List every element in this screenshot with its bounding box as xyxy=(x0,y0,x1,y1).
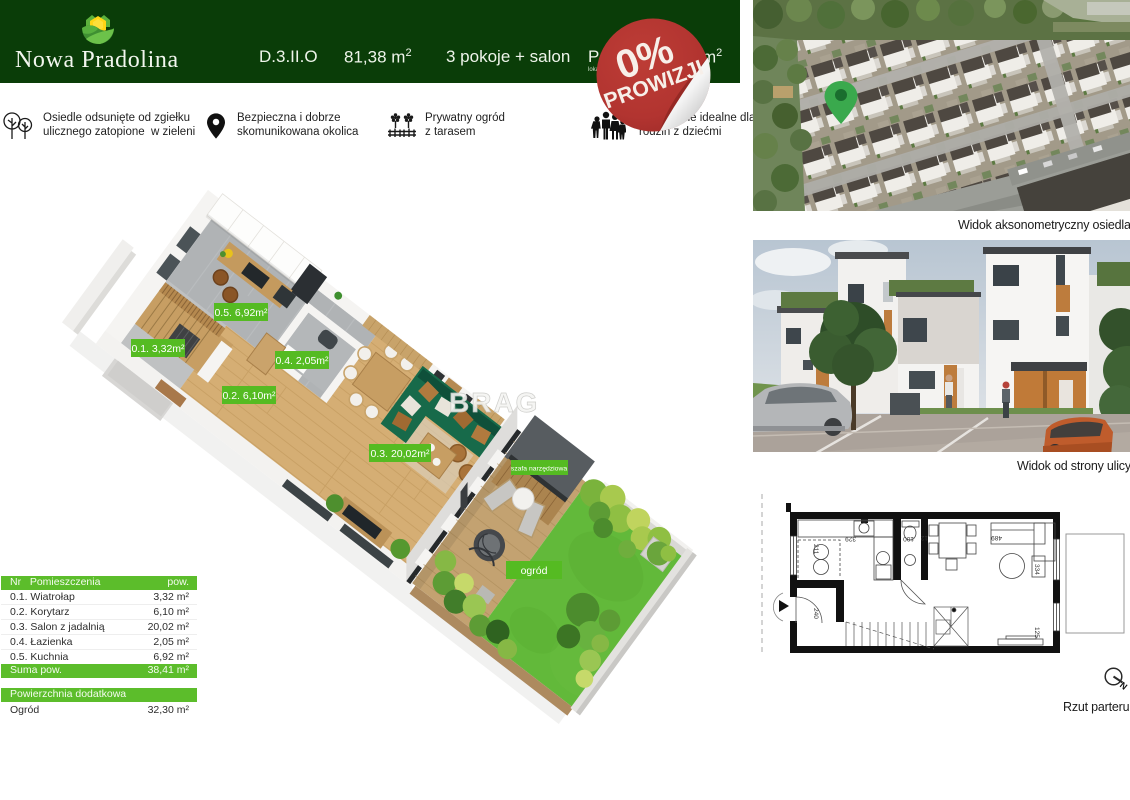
svg-text:0.5. 6,92m²: 0.5. 6,92m² xyxy=(214,307,268,319)
svg-text:ogród: ogród xyxy=(521,565,548,577)
svg-text:0.1. 3,32m²: 0.1. 3,32m² xyxy=(131,343,185,355)
svg-text:0.4. 2,05m²: 0.4. 2,05m² xyxy=(275,355,329,367)
svg-text:BRAG: BRAG xyxy=(449,387,539,418)
svg-text:0.3. 20,02m²: 0.3. 20,02m² xyxy=(371,448,430,460)
svg-text:0.2. 6,10m²: 0.2. 6,10m² xyxy=(222,390,276,402)
svg-text:szafa narzędziowa: szafa narzędziowa xyxy=(511,466,568,473)
